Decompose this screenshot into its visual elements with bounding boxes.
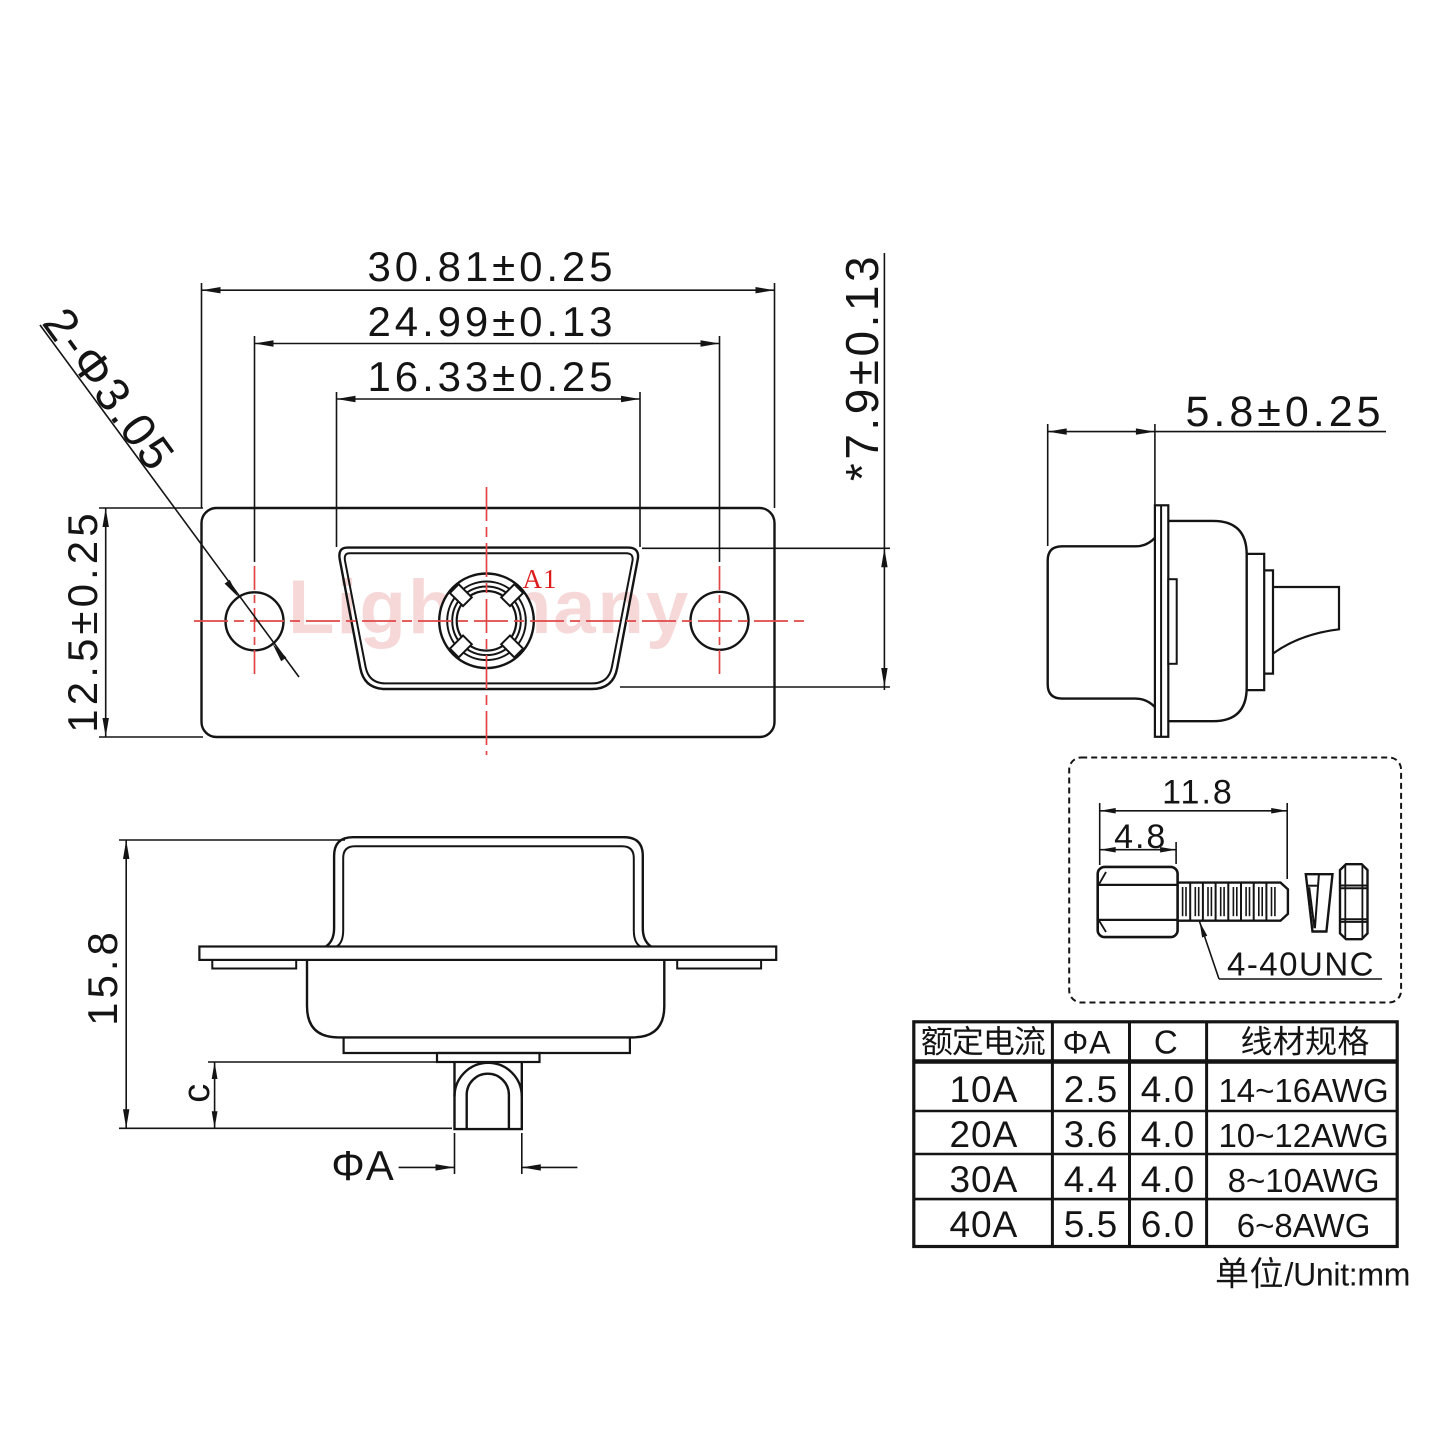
svg-text:8~10AWG: 8~10AWG xyxy=(1228,1162,1380,1199)
svg-text:12.5±0.25: 12.5±0.25 xyxy=(59,509,106,732)
svg-text:14~16AWG: 14~16AWG xyxy=(1218,1072,1388,1109)
svg-text:*7.9±0.13: *7.9±0.13 xyxy=(836,253,888,481)
svg-text:15.8: 15.8 xyxy=(79,928,126,1026)
svg-text:5.8±0.25: 5.8±0.25 xyxy=(1185,388,1384,436)
svg-text:c: c xyxy=(176,1081,218,1103)
svg-text:5.5: 5.5 xyxy=(1064,1204,1118,1245)
svg-text:ΦA: ΦA xyxy=(331,1142,395,1189)
svg-text:4-40UNC: 4-40UNC xyxy=(1227,946,1375,983)
svg-text:3.6: 3.6 xyxy=(1064,1114,1118,1155)
svg-text:4.0: 4.0 xyxy=(1141,1114,1195,1155)
svg-text:A1: A1 xyxy=(523,564,558,594)
svg-text:10A: 10A xyxy=(949,1069,1018,1110)
svg-text:30.81±0.25: 30.81±0.25 xyxy=(368,243,617,290)
svg-text:6.0: 6.0 xyxy=(1141,1204,1195,1245)
svg-text:/Unit:mm: /Unit:mm xyxy=(1285,1257,1411,1293)
svg-text:4.0: 4.0 xyxy=(1141,1069,1195,1110)
svg-text:24.99±0.13: 24.99±0.13 xyxy=(368,298,617,345)
svg-text:30A: 30A xyxy=(949,1159,1018,1200)
svg-text:16.33±0.25: 16.33±0.25 xyxy=(368,353,617,400)
svg-text:6~8AWG: 6~8AWG xyxy=(1237,1207,1371,1244)
svg-text:2.5: 2.5 xyxy=(1064,1069,1118,1110)
svg-text:4.0: 4.0 xyxy=(1141,1159,1195,1200)
svg-text:C: C xyxy=(1154,1023,1179,1060)
svg-text:ΦA: ΦA xyxy=(1063,1024,1112,1060)
svg-text:10~12AWG: 10~12AWG xyxy=(1218,1117,1388,1154)
svg-text:20A: 20A xyxy=(949,1114,1018,1155)
svg-text:40A: 40A xyxy=(949,1204,1018,1245)
svg-text:11.8: 11.8 xyxy=(1162,774,1234,812)
svg-text:4.4: 4.4 xyxy=(1064,1159,1118,1200)
